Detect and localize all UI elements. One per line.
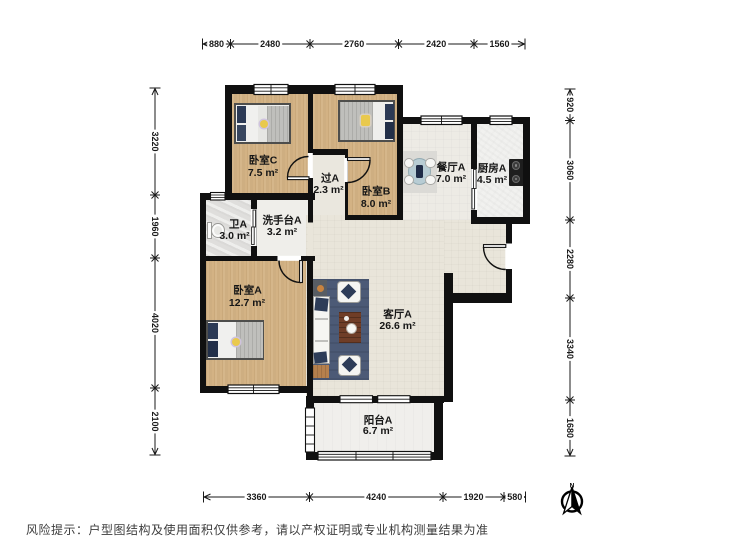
svg-text:1920: 1920 xyxy=(463,492,483,502)
svg-text:3220: 3220 xyxy=(150,131,160,151)
svg-text:2420: 2420 xyxy=(426,39,446,49)
svg-text:3060: 3060 xyxy=(565,160,575,180)
svg-text:920: 920 xyxy=(565,97,575,112)
svg-text:2760: 2760 xyxy=(344,39,364,49)
svg-text:4020: 4020 xyxy=(150,313,160,333)
svg-text:1960: 1960 xyxy=(150,216,160,236)
svg-text:1560: 1560 xyxy=(489,39,509,49)
svg-text:1680: 1680 xyxy=(565,418,575,438)
svg-text:2480: 2480 xyxy=(260,39,280,49)
svg-text:3340: 3340 xyxy=(565,339,575,359)
svg-text:2280: 2280 xyxy=(565,249,575,269)
svg-text:4240: 4240 xyxy=(366,492,386,502)
svg-text:3360: 3360 xyxy=(246,492,266,502)
svg-text:2100: 2100 xyxy=(150,411,160,431)
svg-text:N: N xyxy=(570,483,575,490)
svg-text:580: 580 xyxy=(507,492,522,502)
svg-text:880: 880 xyxy=(209,39,224,49)
